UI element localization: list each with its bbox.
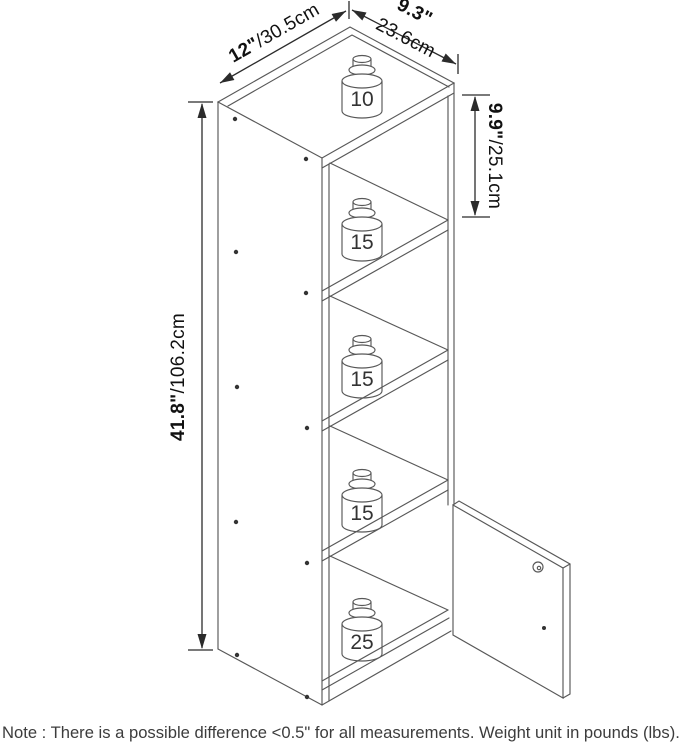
product-dimension-diagram-page: 10 15 15 15 [0, 0, 679, 744]
weight-label-cell2: 15 [350, 368, 373, 391]
width-dimension: 12"/30.5cm [220, 0, 349, 83]
weight-label-cell3: 15 [350, 502, 373, 525]
weight-icon-top: 10 [342, 56, 382, 119]
weight-label-bottom: 25 [350, 631, 373, 654]
weight-icon-cell2: 15 [342, 336, 382, 399]
weight-icon-bottom: 25 [342, 599, 382, 662]
cabinet-edges [218, 83, 454, 705]
measurement-note: Note : There is a possible difference <0… [2, 723, 679, 743]
left-panel-screw-holes [233, 117, 309, 699]
cell-height-dimension-label: 9.9"/25.1cm [484, 103, 505, 209]
bottom-slab [322, 610, 449, 690]
width-dimension-label: 12"/30.5cm [225, 0, 323, 67]
cabinet-outline [218, 27, 454, 705]
weight-label-cell1: 15 [350, 231, 373, 254]
open-door [453, 501, 570, 698]
dimension-diagram-svg: 10 15 15 15 [0, 0, 679, 744]
overall-height-dimension: 41.8"/106.2cm [168, 102, 213, 650]
weight-icon-cell1: 15 [342, 199, 382, 262]
shelves [322, 220, 448, 561]
overall-height-dimension-label: 41.8"/106.2cm [168, 313, 189, 441]
weight-icon-cell3: 15 [342, 470, 382, 533]
cell-height-dimension: 9.9"/25.1cm [462, 95, 505, 217]
weight-label-top: 10 [350, 88, 373, 111]
